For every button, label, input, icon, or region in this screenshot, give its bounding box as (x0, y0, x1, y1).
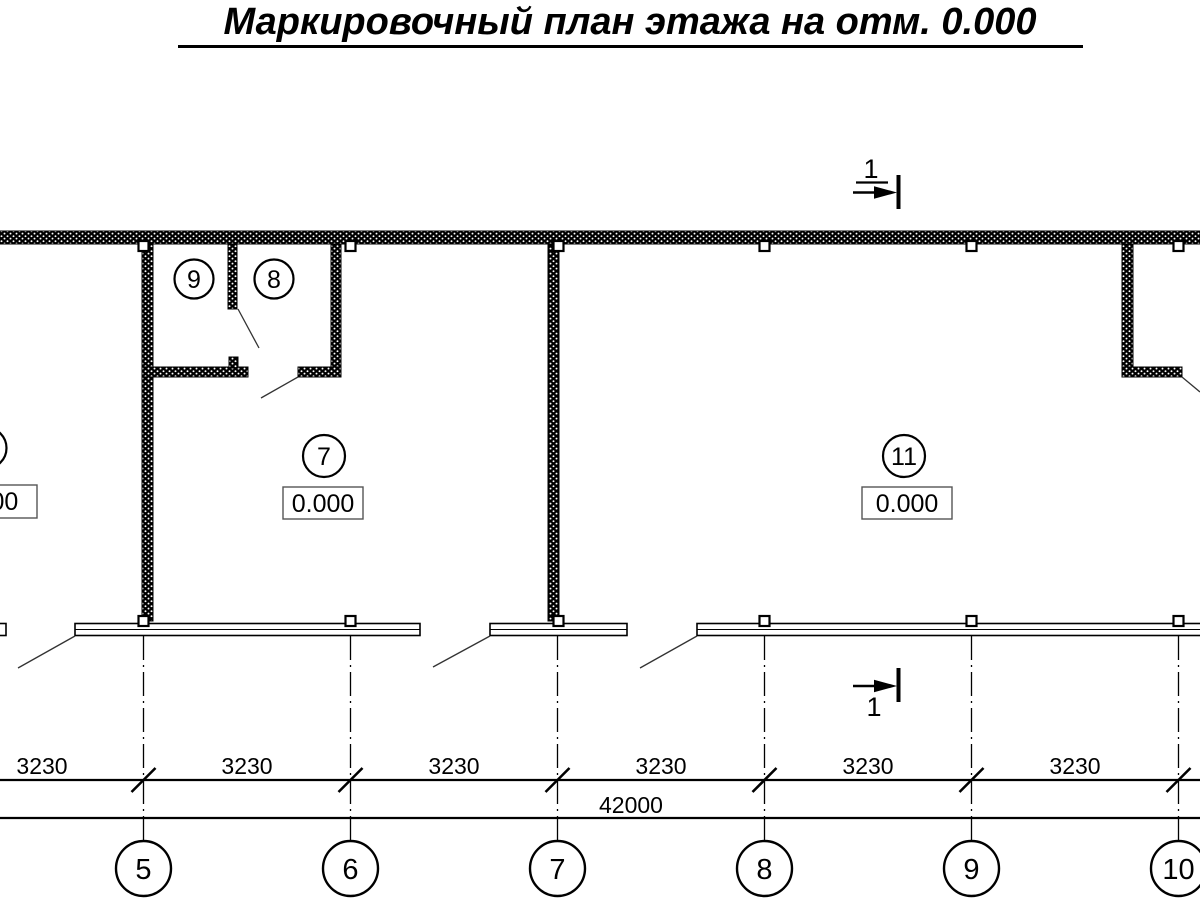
floor-plan-drawing: Маркировочный план этажа на отм. 0.000 (0, 0, 1200, 900)
window-band-left-stub (0, 624, 6, 636)
column-marker-bottom-axis10 (1174, 616, 1184, 626)
section-number: 1 (866, 692, 881, 722)
column-marker-top-axis10 (1174, 241, 1184, 251)
axis-bubble-label: 5 (135, 854, 151, 886)
section-number: 1 (863, 154, 878, 184)
column-marker-top-axis5 (139, 241, 149, 251)
axis-bubble-5: 5 (116, 841, 171, 896)
axis-bubbles: 5 6 7 8 9 10 (116, 841, 1200, 896)
column-marker-bottom-axis7 (554, 616, 564, 626)
column-marker-top-axis8 (760, 241, 770, 251)
column-marker-bottom-axis8 (760, 616, 770, 626)
door-leader-right (1182, 377, 1200, 392)
wall-room8-bottom (298, 367, 341, 377)
room-elevation: 0.000 (0, 488, 18, 516)
axis-bubble-label: 10 (1162, 854, 1194, 886)
axis-bubble-7: 7 (530, 841, 585, 896)
column-markers (139, 241, 1184, 626)
room-elevation: 0.000 (876, 490, 939, 518)
door-leader-room8 (261, 377, 298, 398)
section-marker-top: 1 (853, 154, 899, 209)
dimension-chain: 3230 3230 3230 3230 3230 3230 42000 (0, 753, 1200, 818)
column-marker-bottom-axis9 (967, 616, 977, 626)
door-leader-room9 (238, 309, 259, 348)
dim-label-4: 3230 (635, 753, 686, 779)
page-title: Маркировочный план этажа на отм. 0.000 (224, 1, 1037, 43)
room-number: 8 (267, 266, 281, 294)
wall-top (0, 231, 1200, 244)
axis-bubble-8: 8 (737, 841, 792, 896)
axis-bubble-label: 9 (963, 854, 979, 886)
wall-door-jamb (229, 357, 238, 368)
column-marker-bottom-axis6 (346, 616, 356, 626)
column-marker-top-axis6 (346, 241, 356, 251)
window-band-3 (697, 624, 1200, 636)
column-marker-top-axis7 (554, 241, 564, 251)
axis-bubble-label: 7 (549, 854, 565, 886)
axis-bubble-10: 10 (1151, 841, 1200, 896)
room-elevation: 0.000 (292, 490, 355, 518)
room-tag-7: 7 0.000 (283, 435, 363, 519)
dim-label-6: 3230 (1049, 753, 1100, 779)
room-number: 9 (187, 266, 201, 294)
wall-axis10-return (1122, 367, 1182, 377)
dim-label-3: 3230 (428, 753, 479, 779)
room-number: 11 (891, 443, 917, 471)
section-arrow-head (874, 680, 897, 693)
dim-label-total: 42000 (599, 792, 663, 818)
window-band-1 (75, 624, 420, 636)
leader-lines (18, 309, 1200, 668)
column-marker-top-axis9 (967, 241, 977, 251)
section-marker-bottom: 1 (853, 668, 899, 722)
room-tag-left-clipped: 0.000 (0, 428, 37, 519)
wall-axis10 (1122, 244, 1133, 377)
opening-leader-1 (18, 636, 75, 668)
wall-room8-right (331, 244, 341, 377)
room-tag-9: 9 (175, 260, 214, 299)
room-tag-11: 11 0.000 (862, 435, 952, 519)
opening-leader-3 (640, 636, 697, 668)
plan-canvas: Маркировочный план этажа на отм. 0.000 (0, 0, 1200, 900)
room-number: 7 (317, 443, 331, 471)
wall-axis5 (142, 244, 153, 621)
window-bands (0, 624, 1200, 636)
dim-label-1: 3230 (16, 753, 67, 779)
dim-label-2: 3230 (221, 753, 272, 779)
dim-label-5: 3230 (842, 753, 893, 779)
axis-bubble-label: 6 (342, 854, 358, 886)
wall-axis7 (548, 244, 559, 621)
opening-leader-2 (433, 636, 490, 667)
axis-bubble-label: 8 (756, 854, 772, 886)
section-arrow-head (874, 186, 897, 199)
column-marker-bottom-axis5 (139, 616, 149, 626)
wall-partition-9-8 (228, 244, 237, 309)
room-tag-8: 8 (255, 260, 294, 299)
drawing-title: Маркировочный план этажа на отм. 0.000 (178, 1, 1083, 47)
axis-bubble-6: 6 (323, 841, 378, 896)
axis-bubble-9: 9 (944, 841, 999, 896)
